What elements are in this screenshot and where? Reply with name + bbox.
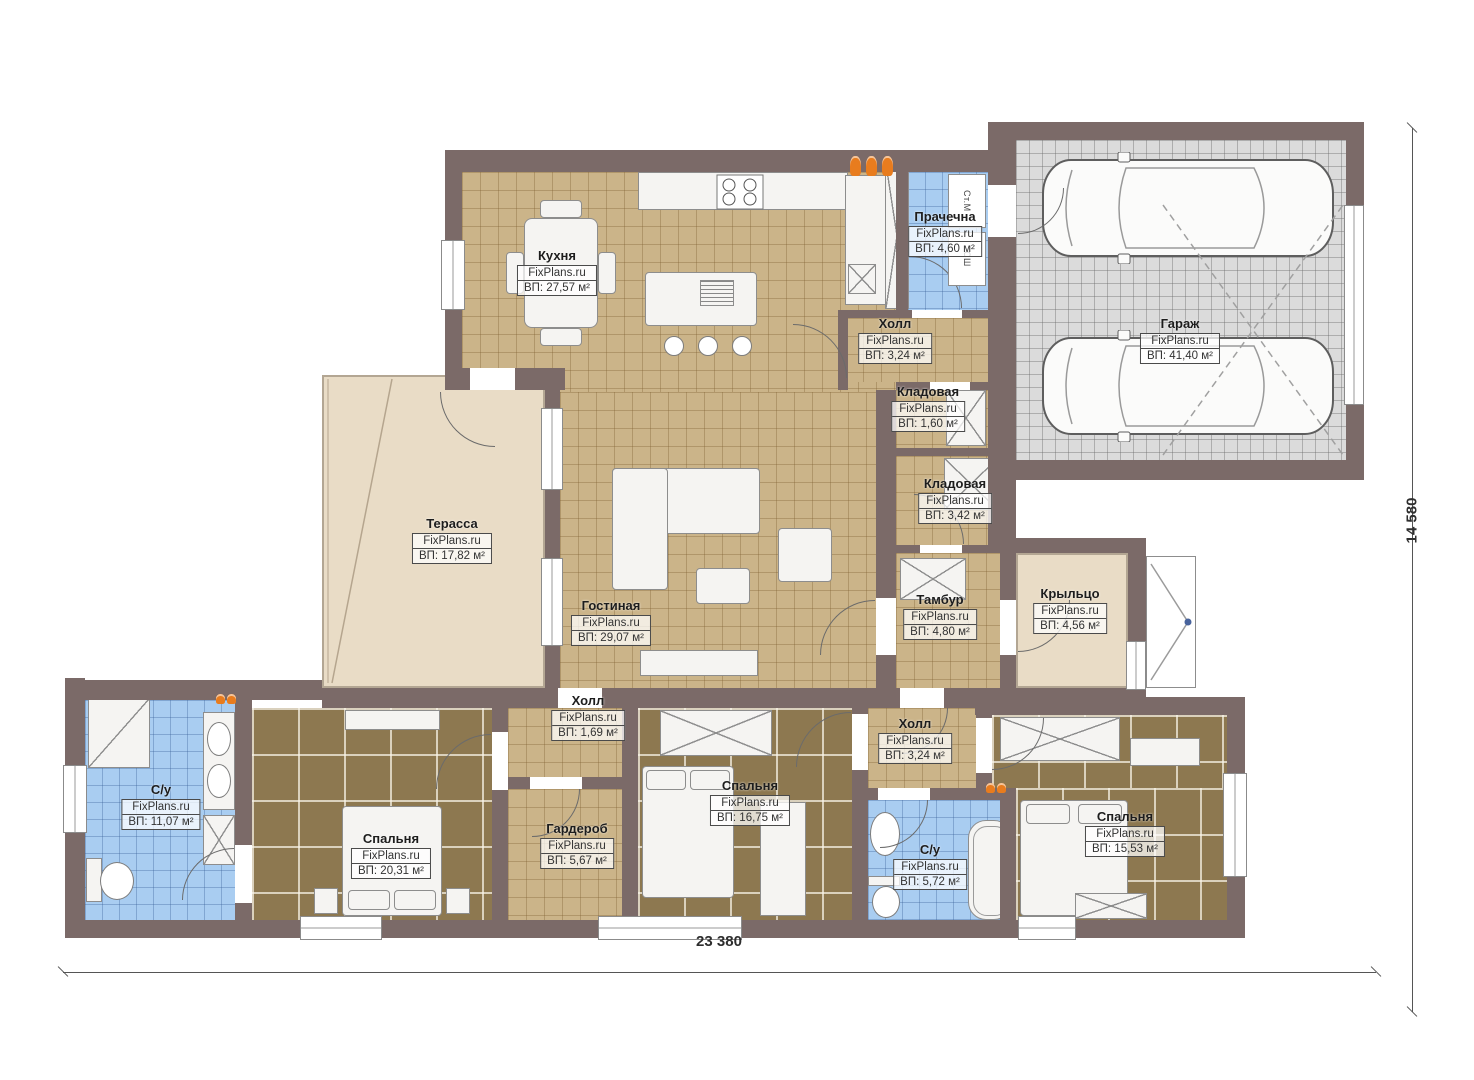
room-label-wardrobe: ГардеробFixPlans.ruВП: 5,67 м²	[540, 821, 614, 869]
boiler-icon	[850, 156, 861, 176]
room-name: Кладовая	[918, 476, 992, 491]
desk	[1130, 738, 1200, 766]
towel-radiator	[216, 694, 225, 704]
closet	[660, 710, 772, 756]
bar-stool	[732, 336, 752, 356]
armchair	[778, 528, 832, 582]
door-opening	[235, 845, 252, 903]
room-area: ВП: 11,07 м²	[122, 815, 199, 829]
room-name: Гостиная	[571, 598, 651, 613]
window	[1223, 773, 1247, 877]
stove-icon	[716, 174, 764, 210]
room-label-porch: КрыльцоFixPlans.ruВП: 4,56 м²	[1033, 586, 1107, 634]
room-info-box: FixPlans.ruВП: 4,56 м²	[1033, 603, 1107, 634]
wall	[1000, 122, 1364, 140]
window	[541, 558, 563, 646]
room-label-bedroom-3: СпальняFixPlans.ruВП: 15,53 м²	[1085, 809, 1165, 857]
wall	[1128, 553, 1146, 643]
pillow	[348, 890, 390, 910]
door-opening	[1000, 600, 1016, 655]
window	[441, 240, 465, 310]
room-name: Холл	[551, 693, 625, 708]
dresser	[345, 710, 440, 730]
bar-stool	[664, 336, 684, 356]
vent-shaft	[848, 264, 876, 294]
garage-door-swing-lines	[1155, 165, 1350, 465]
room-area: ВП: 41,40 м²	[1141, 349, 1219, 363]
sink	[207, 722, 231, 756]
watermark-text: FixPlans.ru	[711, 796, 789, 811]
closet	[1075, 893, 1147, 919]
dimension-line-height	[1412, 128, 1413, 1012]
room-area: ВП: 20,31 м²	[352, 864, 430, 878]
room-name: С/у	[893, 842, 967, 857]
porch-railing	[1126, 641, 1146, 690]
room-name: Гараж	[1140, 316, 1220, 331]
watermark-text: FixPlans.ru	[859, 334, 931, 349]
watermark-text: FixPlans.ru	[904, 610, 976, 625]
chair	[540, 328, 582, 346]
door-opening	[876, 598, 896, 655]
wall	[445, 150, 1008, 172]
boiler-icon	[882, 156, 893, 176]
sink	[207, 764, 231, 798]
wall	[1000, 788, 1016, 920]
room-info-box: FixPlans.ruВП: 5,72 м²	[893, 859, 967, 890]
room-area: ВП: 29,07 м²	[572, 631, 650, 645]
watermark-text: FixPlans.ru	[352, 849, 430, 864]
room-name: Крыльцо	[1033, 586, 1107, 601]
wall	[445, 310, 462, 370]
watermark-text: FixPlans.ru	[541, 839, 613, 854]
door-opening	[470, 368, 515, 390]
door-opening	[492, 732, 508, 790]
room-name: Спальня	[1085, 809, 1165, 824]
chair	[598, 252, 616, 294]
room-info-box: FixPlans.ruВП: 41,40 м²	[1140, 333, 1220, 364]
dimension-height-label: 14 580	[1404, 475, 1421, 567]
room-label-living: ГостинаяFixPlans.ruВП: 29,07 м²	[571, 598, 651, 646]
door-opening	[988, 185, 1016, 237]
room-label-hall-1: ХоллFixPlans.ruВП: 1,69 м²	[551, 693, 625, 741]
room-label-garage: ГаражFixPlans.ruВП: 41,40 м²	[1140, 316, 1220, 364]
room-area: ВП: 5,67 м²	[541, 854, 613, 868]
room-name: Гардероб	[540, 821, 614, 836]
wall	[1000, 460, 1364, 480]
watermark-text: FixPlans.ru	[413, 534, 491, 549]
room-name: Тамбур	[903, 592, 977, 607]
boiler-icon	[866, 156, 877, 176]
room-area: ВП: 4,60 м²	[909, 242, 981, 256]
room-area: ВП: 16,75 м²	[711, 811, 789, 825]
room-area: ВП: 3,42 м²	[919, 509, 991, 523]
room-label-tambour: ТамбурFixPlans.ruВП: 4,80 м²	[903, 592, 977, 640]
towel-radiator	[997, 783, 1006, 793]
watermark-text: FixPlans.ru	[909, 227, 981, 242]
room-info-box: FixPlans.ruВП: 20,31 м²	[351, 848, 431, 879]
room-info-box: FixPlans.ruВП: 27,57 м²	[517, 265, 597, 296]
room-label-kitchen: КухняFixPlans.ruВП: 27,57 м²	[517, 248, 597, 296]
walkway-marking	[1146, 556, 1196, 688]
room-info-box: FixPlans.ruВП: 4,80 м²	[903, 609, 977, 640]
pillow	[646, 770, 686, 790]
tv-stand	[640, 650, 758, 676]
garage-door	[1344, 205, 1364, 405]
room-name: Спальня	[710, 778, 790, 793]
room-label-bedroom-2: СпальняFixPlans.ruВП: 16,75 м²	[710, 778, 790, 826]
island-sink	[700, 280, 734, 306]
room-label-hall-2: ХоллFixPlans.ruВП: 3,24 м²	[878, 716, 952, 764]
room-label-terrace: ТерассаFixPlans.ruВП: 17,82 м²	[412, 516, 492, 564]
nightstand	[446, 888, 470, 914]
window	[1018, 916, 1076, 940]
watermark-text: FixPlans.ru	[572, 616, 650, 631]
watermark-text: FixPlans.ru	[879, 734, 951, 749]
door-opening	[530, 777, 582, 789]
room-name: Кладовая	[891, 384, 965, 399]
watermark-text: FixPlans.ru	[518, 266, 596, 281]
wall	[65, 680, 322, 700]
nightstand	[314, 888, 338, 914]
pillow	[1026, 804, 1070, 824]
room-info-box: FixPlans.ruВП: 3,24 м²	[878, 733, 952, 764]
wall	[896, 448, 1000, 456]
watermark-text: FixPlans.ru	[552, 711, 624, 726]
room-name: Прачечна	[908, 209, 982, 224]
room-info-box: FixPlans.ruВП: 29,07 м²	[571, 615, 651, 646]
dimension-line-width	[63, 972, 1376, 973]
room-area: ВП: 4,80 м²	[904, 625, 976, 639]
room-label-pantry-small: КладоваяFixPlans.ruВП: 1,60 м²	[891, 384, 965, 432]
watermark-text: FixPlans.ru	[894, 860, 966, 875]
watermark-text: FixPlans.ru	[892, 402, 964, 417]
room-area: ВП: 1,60 м²	[892, 417, 964, 431]
toilet	[872, 886, 900, 918]
coffee-table	[696, 568, 750, 604]
window	[63, 765, 87, 833]
room-label-pantry: КладоваяFixPlans.ruВП: 3,42 м²	[918, 476, 992, 524]
room-name: Спальня	[351, 831, 431, 846]
wall	[322, 688, 545, 708]
floor-plan: Ст.М СШ КухняFixPlans	[0, 0, 1474, 1080]
window	[300, 916, 382, 940]
watermark-text: FixPlans.ru	[1141, 334, 1219, 349]
room-name: Холл	[858, 316, 932, 331]
room-name: Холл	[878, 716, 952, 731]
pillow	[394, 890, 436, 910]
room-info-box: FixPlans.ruВП: 16,75 м²	[710, 795, 790, 826]
room-info-box: FixPlans.ruВП: 5,67 м²	[540, 838, 614, 869]
toilet	[100, 862, 134, 900]
wall	[896, 172, 908, 318]
wall	[1346, 140, 1364, 210]
watermark-text: FixPlans.ru	[1034, 604, 1106, 619]
room-info-box: FixPlans.ruВП: 11,07 м²	[121, 799, 200, 830]
room-name: С/у	[121, 782, 200, 797]
room-area: ВП: 1,69 м²	[552, 726, 624, 740]
wall	[1016, 538, 1146, 553]
room-name: Терасса	[412, 516, 492, 531]
door-opening	[920, 545, 962, 553]
room-area: ВП: 3,24 м²	[879, 749, 951, 763]
watermark-text: FixPlans.ru	[1086, 827, 1164, 842]
room-area: ВП: 27,57 м²	[518, 281, 596, 295]
chair	[540, 200, 582, 218]
door-opening	[878, 788, 930, 800]
room-info-box: FixPlans.ruВП: 15,53 м²	[1085, 826, 1165, 857]
sofa-chaise	[612, 468, 668, 590]
room-info-box: FixPlans.ruВП: 4,60 м²	[908, 226, 982, 257]
shower	[88, 698, 150, 768]
wall	[445, 172, 462, 240]
door-opening	[852, 714, 868, 770]
door-opening	[976, 718, 992, 773]
room-label-bath-2: С/уFixPlans.ruВП: 5,72 м²	[893, 842, 967, 890]
room-area: ВП: 15,53 м²	[1086, 842, 1164, 856]
dimension-width-label: 23 380	[696, 933, 742, 950]
room-name: Кухня	[517, 248, 597, 263]
room-info-box: FixPlans.ruВП: 1,60 м²	[891, 401, 965, 432]
room-area: ВП: 4,56 м²	[1034, 619, 1106, 633]
room-label-bedroom-1: СпальняFixPlans.ruВП: 20,31 м²	[351, 831, 431, 879]
room-area: ВП: 5,72 м²	[894, 875, 966, 889]
watermark-text: FixPlans.ru	[122, 800, 199, 815]
room-info-box: FixPlans.ruВП: 17,82 м²	[412, 533, 492, 564]
watermark-text: FixPlans.ru	[919, 494, 991, 509]
wall	[975, 697, 1245, 715]
room-label-laundry: ПрачечнаFixPlans.ruВП: 4,60 м²	[908, 209, 982, 257]
room-area: ВП: 17,82 м²	[413, 549, 491, 563]
room-info-box: FixPlans.ruВП: 1,69 м²	[551, 710, 625, 741]
room-area: ВП: 3,24 м²	[859, 349, 931, 363]
towel-radiator	[227, 694, 236, 704]
room-info-box: FixPlans.ruВП: 3,24 м²	[858, 333, 932, 364]
bar-stool	[698, 336, 718, 356]
door-opening	[900, 688, 944, 708]
towel-radiator	[986, 783, 995, 793]
room-info-box: FixPlans.ruВП: 3,42 м²	[918, 493, 992, 524]
window	[541, 408, 563, 490]
room-label-hall-top: ХоллFixPlans.ruВП: 3,24 м²	[858, 316, 932, 364]
room-label-bath-main: С/уFixPlans.ruВП: 11,07 м²	[121, 782, 200, 830]
